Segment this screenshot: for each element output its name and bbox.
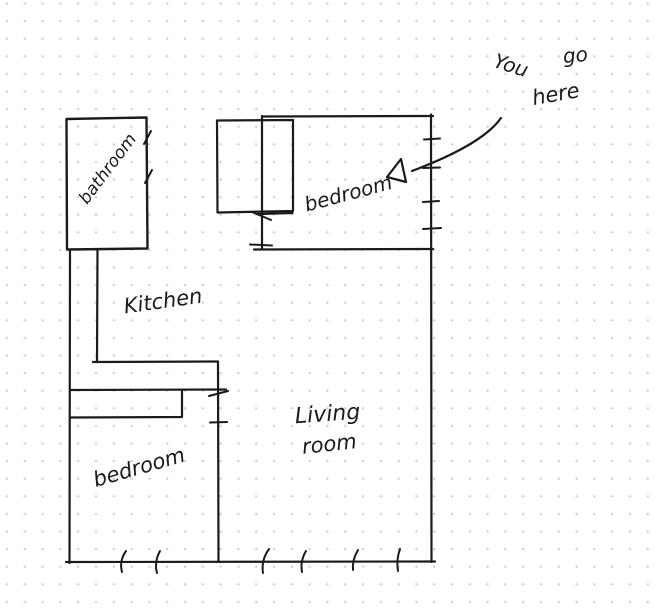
bedroom-bottom-top-wall: [70, 390, 226, 391]
door-tick: [423, 168, 440, 169]
door-tick: [210, 422, 227, 423]
door-tick: [423, 201, 439, 202]
door-tick: [424, 139, 440, 140]
door-tick: [250, 245, 272, 246]
middle-wall: [218, 362, 219, 562]
right-exterior-wall: [431, 115, 432, 563]
living-room-label-line1: Living: [294, 400, 361, 430]
annotation-word-go: go: [562, 42, 589, 68]
bedroom-top-closet-double-line: [258, 213, 293, 214]
left-exterior-wall: [70, 250, 71, 563]
drawing-canvas[interactable]: bathroom Kitchen bedroom bedroom Living …: [0, 0, 672, 610]
bedroom-top-bottom-wall: [254, 249, 433, 250]
floorplan-sketch: bathroom Kitchen bedroom bedroom Living …: [0, 0, 672, 610]
bedroom-top-top-wall: [262, 116, 433, 117]
door-tick: [423, 228, 441, 229]
